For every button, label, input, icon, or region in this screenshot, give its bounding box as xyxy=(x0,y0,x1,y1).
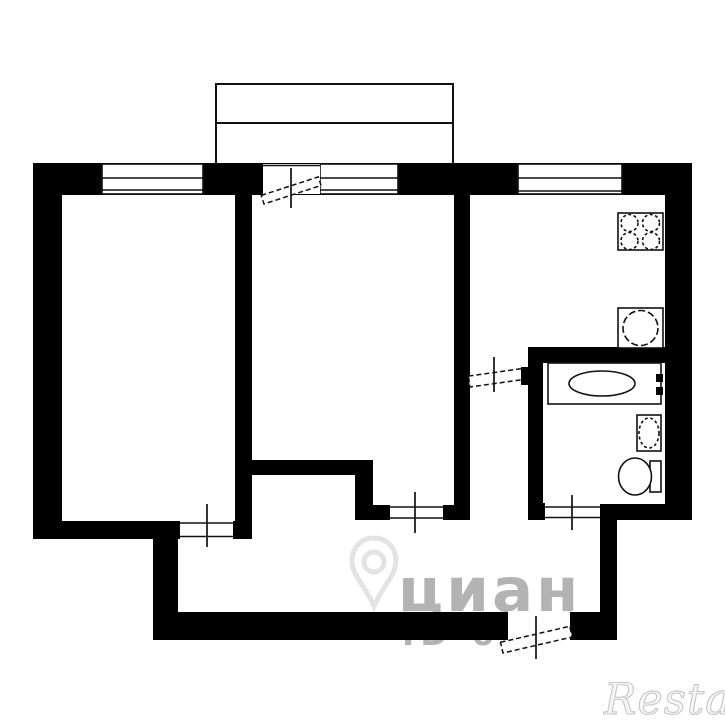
burner xyxy=(621,233,638,250)
basin-bowl xyxy=(639,418,659,448)
floor-plan-svg xyxy=(0,0,725,725)
toilet-icon xyxy=(619,458,662,495)
balcony-outline xyxy=(216,84,453,166)
door-leaf xyxy=(468,368,525,387)
wall-room-left-bottom-a xyxy=(33,521,180,539)
window-kitchen xyxy=(518,164,622,194)
wall-right xyxy=(665,163,692,520)
wall-divider-room-kitchen xyxy=(454,194,470,520)
sink-body xyxy=(618,308,663,348)
door-hinge-block xyxy=(521,367,534,385)
floor-plan-canvas: циан ID 69 xyxy=(0,0,725,725)
tub-faucet xyxy=(656,374,663,382)
burner xyxy=(643,215,660,232)
wall-bottom-left xyxy=(153,612,508,640)
tub-faucet xyxy=(656,387,663,395)
balcony xyxy=(216,84,453,166)
room-left-door xyxy=(180,504,233,547)
wall-room-middle-bottom2a xyxy=(373,505,390,520)
burner xyxy=(643,233,660,250)
balcony-door xyxy=(261,164,321,208)
wall-divider-rooms xyxy=(235,194,252,539)
kitchen-sink-icon xyxy=(618,308,663,348)
wall-left xyxy=(33,163,62,539)
wall-room-middle-bottom2b xyxy=(443,505,470,520)
wall-bath-bottom-outer xyxy=(600,504,692,520)
wall-hall-right xyxy=(600,504,617,640)
window-frame xyxy=(518,164,622,194)
wall-kitchen-bathroom xyxy=(528,347,692,363)
stove-icon xyxy=(618,213,663,250)
room-middle-door xyxy=(390,492,443,533)
window-balcony xyxy=(320,164,398,194)
tub-body xyxy=(548,363,661,404)
bathroom-door xyxy=(545,495,600,530)
wall-room-middle-bottom xyxy=(252,460,368,475)
kitchen-door xyxy=(468,357,534,392)
bathtub-icon xyxy=(548,363,663,404)
toilet-bowl xyxy=(619,458,652,495)
entrance-door xyxy=(501,611,573,659)
wall-room-middle-step xyxy=(355,460,373,520)
restate-watermark-text: Restate xyxy=(604,679,725,722)
washbasin-icon xyxy=(637,415,661,451)
window-room-left xyxy=(102,164,203,194)
burner xyxy=(621,215,638,232)
